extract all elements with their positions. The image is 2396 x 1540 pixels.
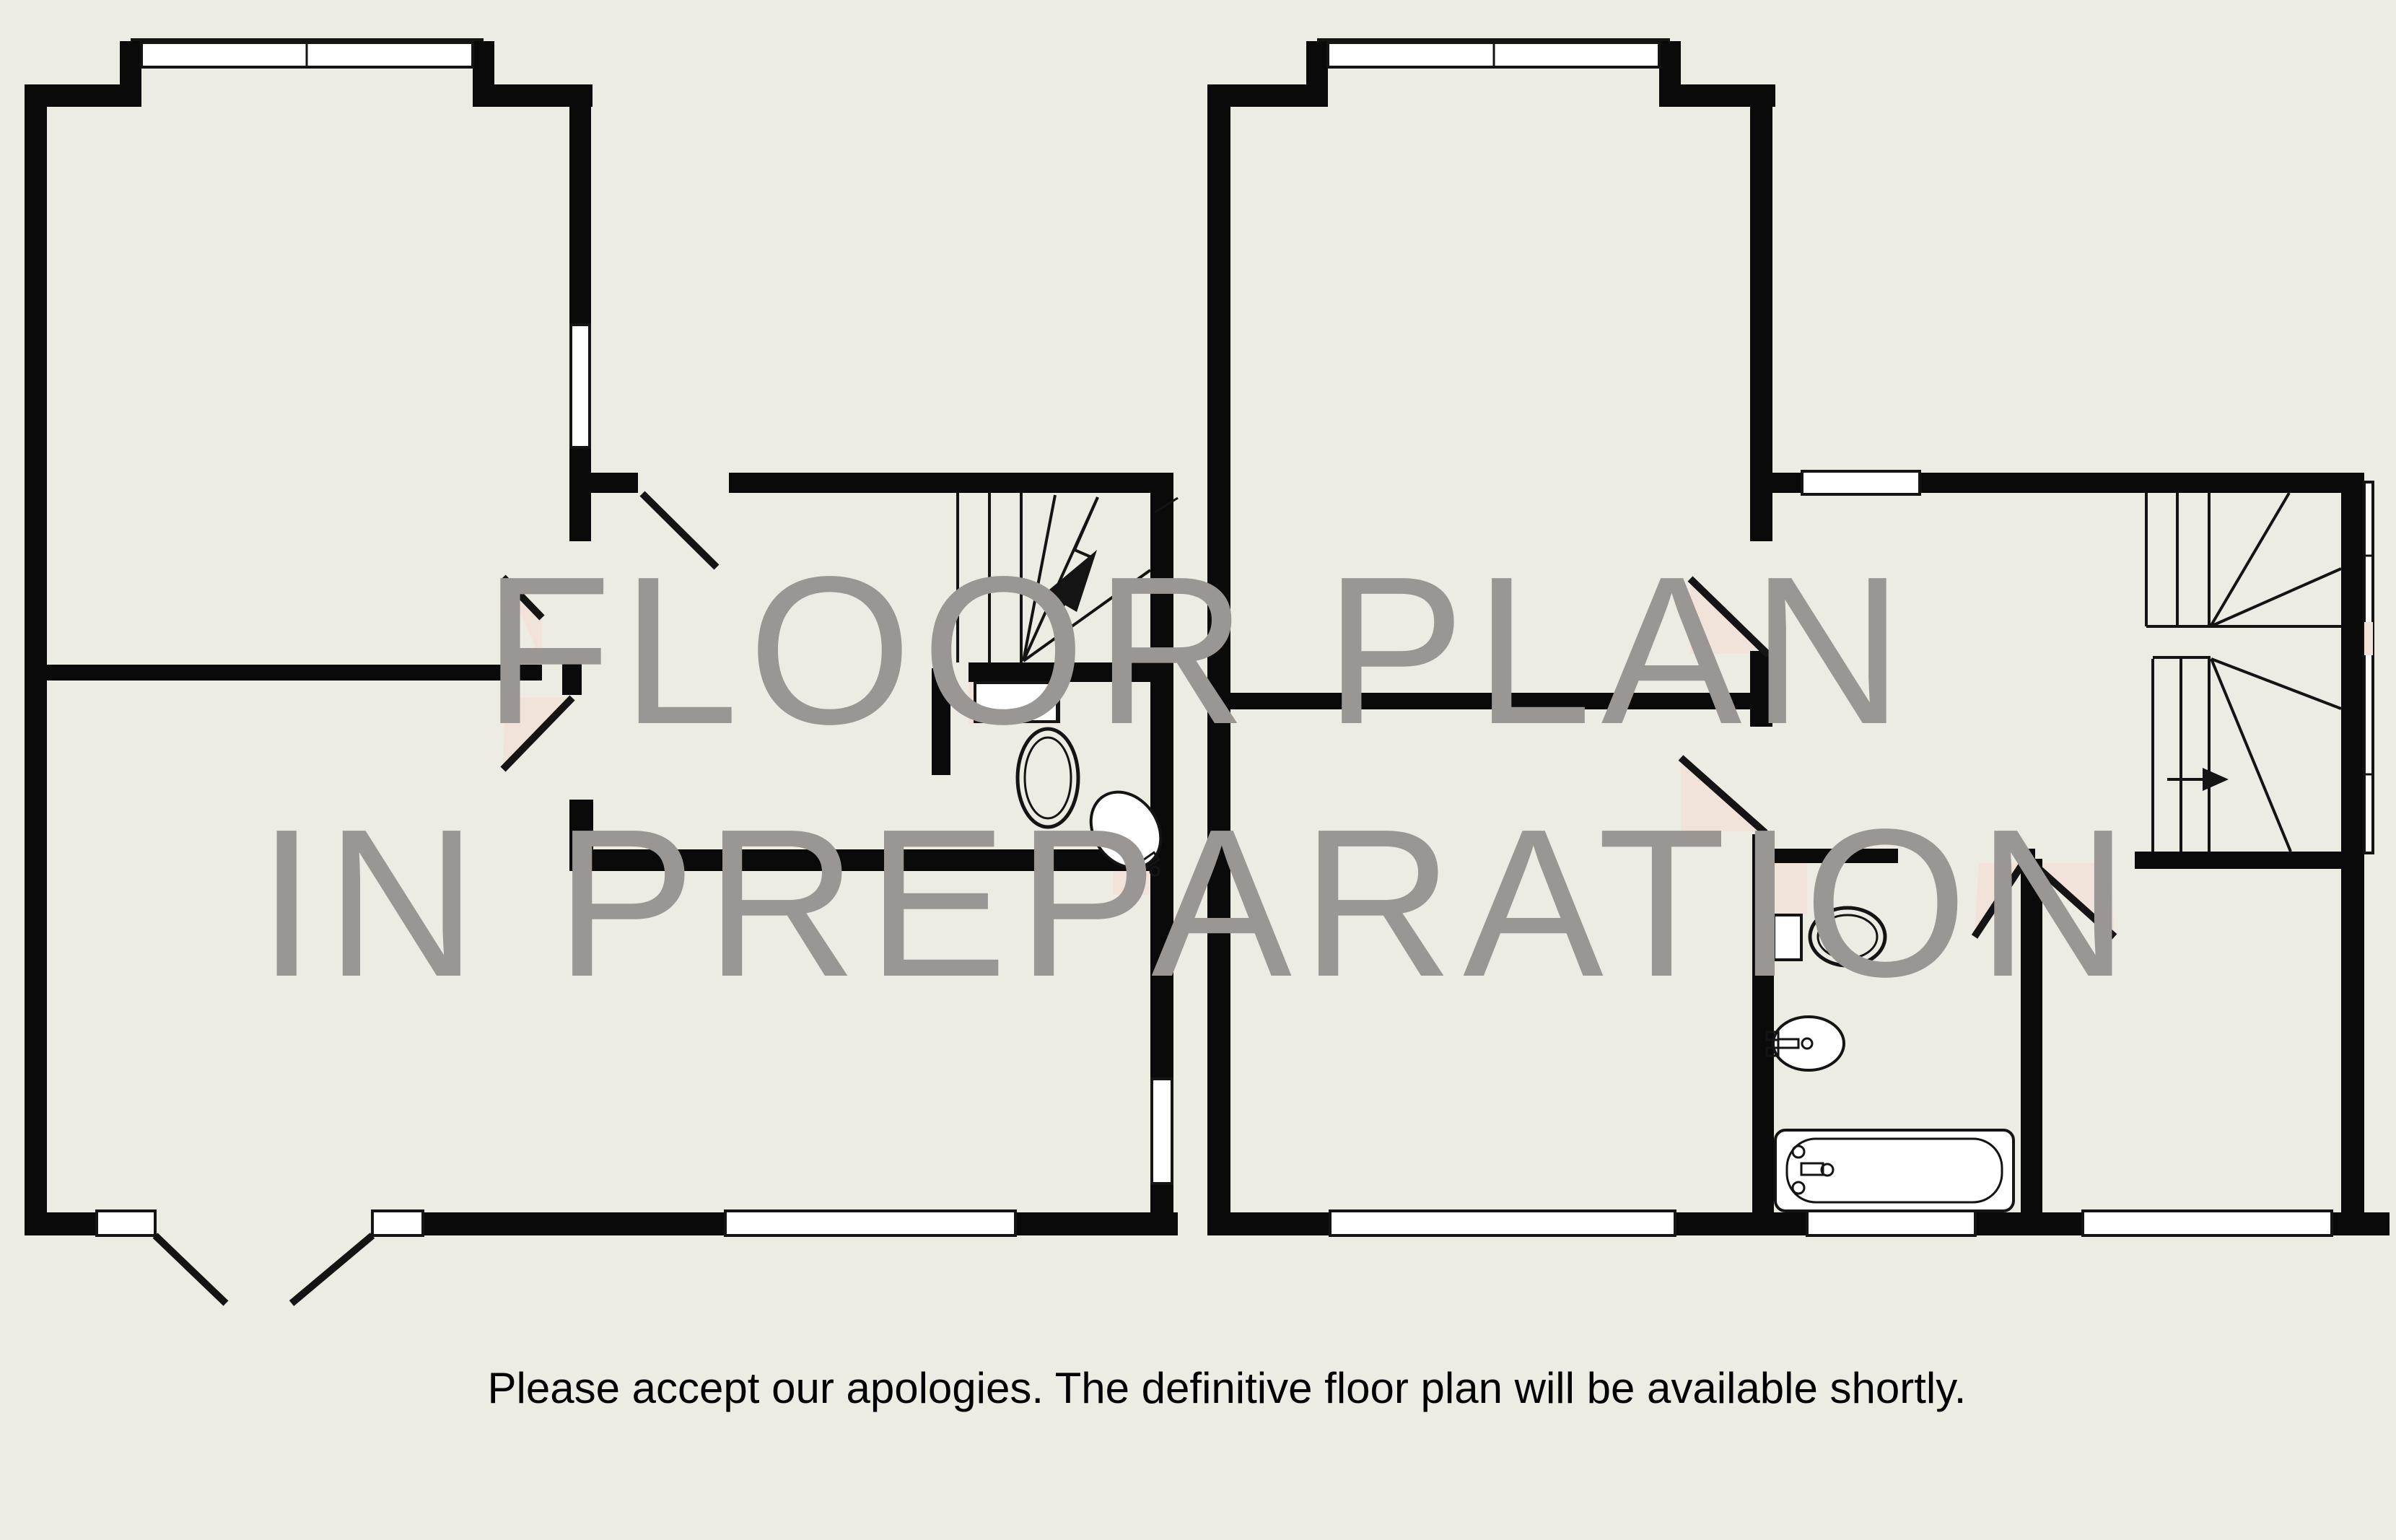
stairs-icon [2146, 493, 2341, 852]
bathtub-icon [1775, 1130, 2014, 1211]
sink-icon [1767, 1017, 1844, 1070]
watermark-line-2: IN PREPARATION [258, 785, 2139, 1020]
floor-plan-image: FLOOR PLAN IN PREPARATION Please accept … [0, 0, 2396, 1540]
watermark-line-1: FLOOR PLAN [483, 533, 1912, 768]
caption-text: Please accept our apologies. The definit… [488, 1364, 1967, 1412]
stairs-direction-arrow [2203, 768, 2229, 791]
